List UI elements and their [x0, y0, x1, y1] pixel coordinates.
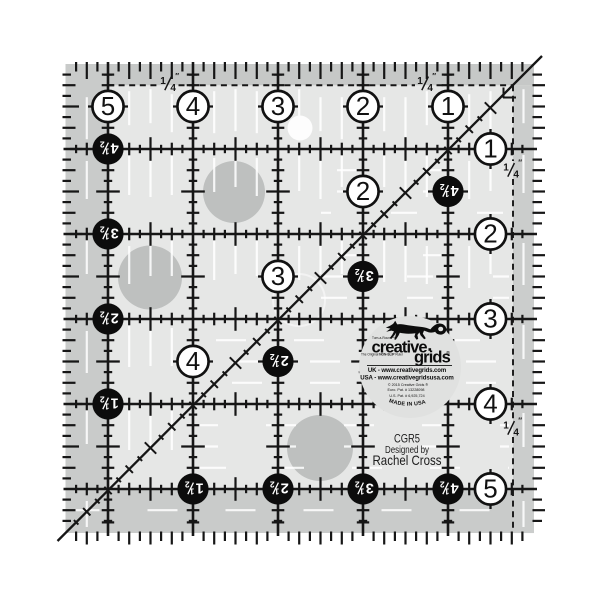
- svg-text:2: 2: [356, 176, 370, 206]
- svg-text:2: 2: [100, 225, 105, 235]
- svg-text:1: 1: [483, 134, 497, 164]
- svg-text:1: 1: [441, 91, 455, 121]
- svg-text:4: 4: [111, 139, 119, 155]
- svg-text:UK - www.creativegrids.com: UK - www.creativegrids.com: [368, 368, 446, 374]
- svg-text:3: 3: [111, 224, 119, 240]
- svg-text:1: 1: [111, 394, 119, 410]
- svg-text:3: 3: [366, 479, 374, 495]
- svg-text:″: ″: [175, 72, 179, 81]
- svg-text:1: 1: [503, 420, 509, 431]
- svg-text:1: 1: [503, 162, 509, 173]
- svg-text:2: 2: [483, 219, 497, 249]
- svg-text:4: 4: [513, 428, 519, 439]
- svg-text:© 2015 Creative Grids ®: © 2015 Creative Grids ®: [388, 383, 429, 387]
- svg-text:2: 2: [100, 140, 105, 150]
- svg-text:5: 5: [101, 91, 115, 121]
- svg-text:4: 4: [170, 83, 176, 94]
- svg-text:2: 2: [281, 352, 289, 368]
- svg-text:4: 4: [483, 389, 497, 419]
- svg-text:4: 4: [186, 346, 200, 376]
- svg-text:4: 4: [451, 479, 459, 495]
- svg-text:Rachel Cross: Rachel Cross: [373, 452, 442, 468]
- svg-text:″: ″: [432, 72, 436, 81]
- svg-text:4: 4: [186, 91, 200, 121]
- svg-text:U.S. Pat. # 6,925,724: U.S. Pat. # 6,925,724: [389, 394, 424, 398]
- svg-text:4: 4: [513, 170, 519, 181]
- svg-text:Euro. Pat. # 13228098: Euro. Pat. # 13228098: [388, 388, 425, 392]
- svg-text:5: 5: [483, 474, 497, 504]
- svg-text:1: 1: [160, 76, 166, 87]
- svg-text:2: 2: [440, 480, 445, 490]
- svg-text:″: ″: [518, 159, 522, 168]
- svg-text:2: 2: [355, 267, 360, 277]
- svg-text:4: 4: [427, 83, 433, 94]
- svg-text:2: 2: [270, 352, 275, 362]
- svg-text:The Original NON-SLIP Ruler: The Original NON-SLIP Ruler: [361, 353, 404, 357]
- svg-text:USA - www.creativegridsusa.com: USA - www.creativegridsusa.com: [360, 374, 454, 381]
- svg-text:2: 2: [270, 480, 275, 490]
- svg-text:1: 1: [417, 76, 423, 87]
- svg-text:3: 3: [271, 91, 285, 121]
- svg-text:3: 3: [483, 304, 497, 334]
- svg-text:2: 2: [185, 480, 190, 490]
- svg-text:2: 2: [440, 182, 445, 192]
- svg-text:2: 2: [281, 479, 289, 495]
- svg-text:″: ″: [518, 417, 522, 426]
- svg-text:®: ®: [446, 350, 450, 357]
- svg-text:2: 2: [100, 310, 105, 320]
- svg-text:2: 2: [356, 91, 370, 121]
- svg-text:3: 3: [271, 261, 285, 291]
- svg-text:2: 2: [355, 480, 360, 490]
- svg-text:3: 3: [366, 267, 374, 283]
- svg-text:1: 1: [196, 479, 204, 495]
- svg-text:4: 4: [451, 182, 459, 198]
- svg-text:2: 2: [100, 395, 105, 405]
- svg-text:2: 2: [111, 309, 119, 325]
